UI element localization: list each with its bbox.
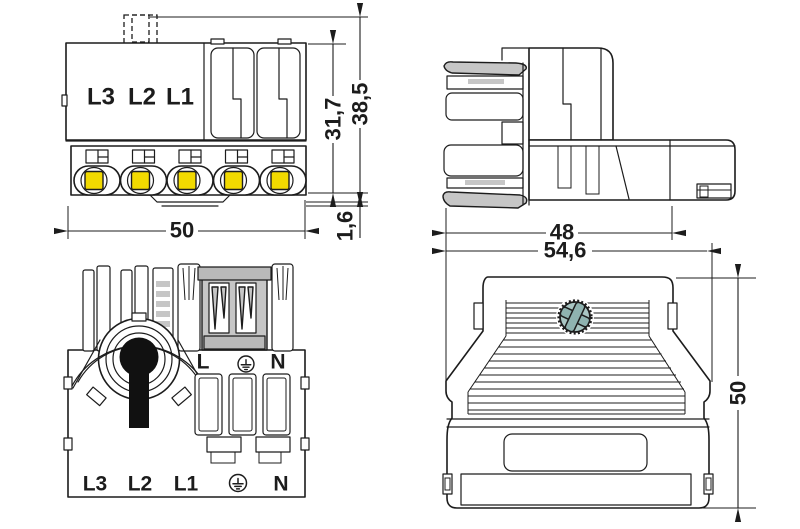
technical-drawing-canvas: L3 L2 L1 50 31,7 38,5 [0, 0, 800, 529]
dim-text-front-height-outer: 38,5 [348, 83, 373, 126]
label-l1-face: L1 [174, 473, 199, 496]
side-view [443, 48, 735, 208]
side-clip [697, 184, 731, 198]
coding-element [198, 267, 271, 350]
label-live-face: L [197, 351, 210, 374]
dim-text-front-rail-lip: 1,6 [333, 211, 358, 242]
front-view: L3 L2 L1 [62, 15, 306, 206]
rail-foot [150, 195, 230, 202]
side-latch-top [444, 62, 526, 75]
dim-front-height-inner: 31,7 [321, 44, 346, 193]
label-neutral-face: N [270, 351, 285, 374]
label-l3-front: L3 [87, 84, 115, 111]
label-l3-face: L3 [83, 473, 108, 496]
marking-field [504, 434, 647, 471]
dim-housing-width: 54,6 [446, 238, 707, 263]
dashed-latch-outline [124, 15, 157, 44]
dim-front-rail-lip: 1,6 [333, 206, 361, 241]
dim-housing-height: 50 [726, 278, 751, 508]
side-latch-bottom [443, 192, 527, 208]
dim-front-height-outer: 38,5 [348, 17, 373, 193]
label-l2-front: L2 [128, 84, 156, 111]
label-l1-front: L1 [166, 84, 194, 111]
dim-text-housing-width: 54,6 [544, 238, 587, 263]
label-n-face: N [273, 473, 288, 496]
dim-text-front-width: 50 [170, 218, 194, 243]
side-prong-lower [444, 145, 523, 176]
housing-bottom-panel [461, 474, 691, 505]
label-l2-face: L2 [128, 473, 153, 496]
dim-text-front-height-inner: 31,7 [321, 98, 346, 141]
drawing-svg: L3 L2 L1 50 31,7 38,5 [0, 0, 800, 529]
housing-rear-view [443, 277, 713, 508]
dim-text-housing-height: 50 [726, 381, 751, 405]
dim-front-width: 50 [68, 218, 305, 243]
side-prong-upper [446, 93, 523, 120]
mating-face-view: L N L3 L2 L1 N [64, 264, 309, 497]
